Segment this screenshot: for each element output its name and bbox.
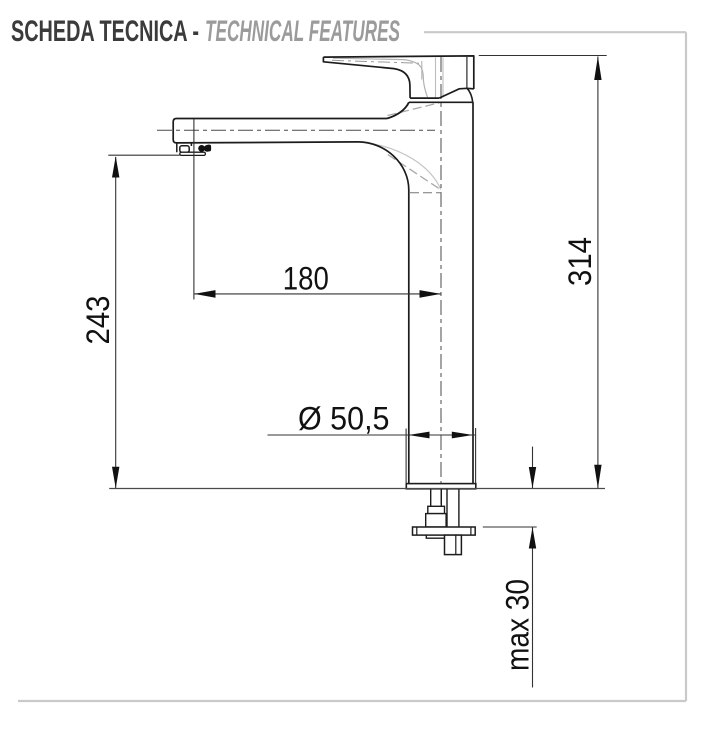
svg-text:314: 314 — [562, 237, 598, 286]
svg-text:243: 243 — [80, 296, 116, 345]
svg-text:Ø 50,5: Ø 50,5 — [298, 400, 390, 436]
svg-text:TECHNICAL FEATURES: TECHNICAL FEATURES — [205, 15, 400, 48]
svg-text:SCHEDA TECNICA -: SCHEDA TECNICA - — [11, 15, 199, 48]
svg-text:180: 180 — [283, 261, 329, 297]
svg-text:max 30: max 30 — [499, 579, 535, 671]
